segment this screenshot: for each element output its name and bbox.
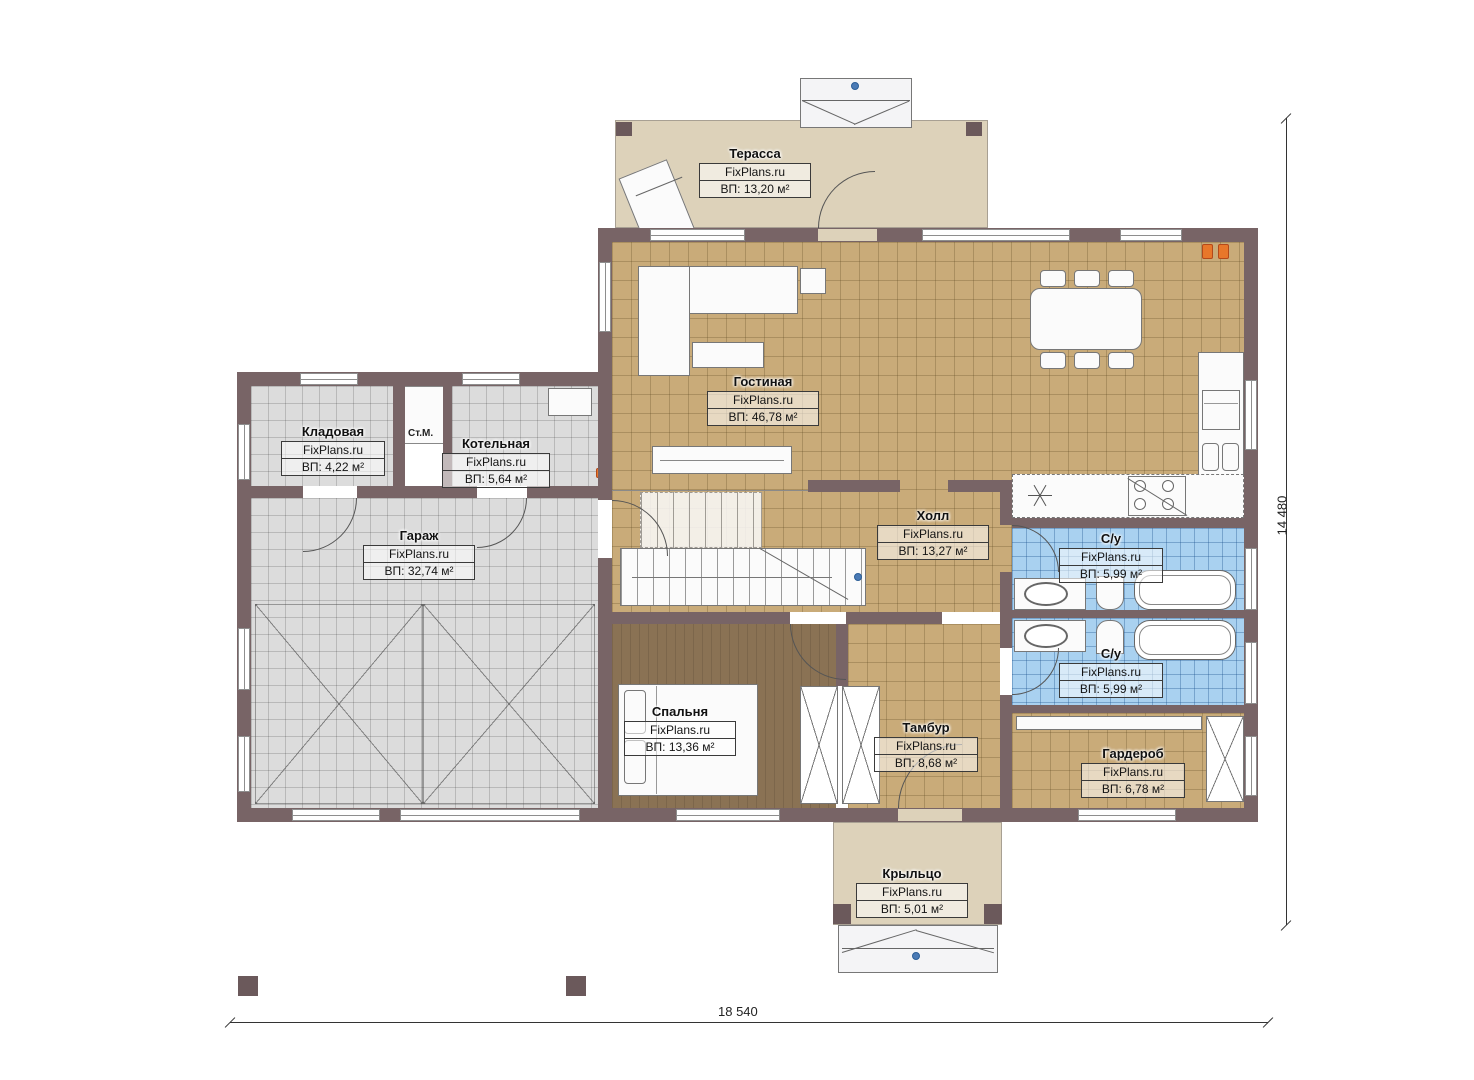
window [676, 809, 780, 821]
washing-machine-label: Ст.М. [408, 428, 433, 439]
room-area: ВП: 5,99 м² [1060, 566, 1162, 582]
room-area: ВП: 46,78 м² [708, 409, 818, 425]
window [292, 809, 380, 821]
window [238, 628, 250, 690]
brand-watermark: FixPlans.ru [700, 164, 810, 181]
room-label-wardrobe: Гардероб FixPlans.ru ВП: 6,78 м² [1081, 746, 1185, 798]
brand-watermark: FixPlans.ru [708, 392, 818, 409]
floor-plan: Терасса FixPlans.ru ВП: 13,20 м² Гостина… [0, 0, 1474, 1080]
chair [1108, 352, 1134, 369]
room-label-bath2: С/у FixPlans.ru ВП: 5,99 м² [1059, 646, 1163, 698]
coffee-table [692, 342, 764, 368]
window [1245, 548, 1257, 610]
boiler-unit [548, 388, 592, 416]
wall [808, 480, 900, 492]
room-name: С/у [1059, 531, 1163, 546]
fridge [1202, 390, 1240, 430]
railing-line [612, 490, 808, 491]
room-area: ВП: 8,68 м² [875, 755, 977, 771]
tv-stand-line [660, 460, 784, 461]
wardrobe-shelf [1016, 716, 1202, 730]
room-name: Спальня [624, 704, 736, 719]
brand-watermark: FixPlans.ru [1060, 664, 1162, 681]
radiator-icon [1202, 244, 1213, 259]
wall [1000, 572, 1012, 648]
window [238, 736, 250, 792]
garage-hatch [423, 604, 595, 804]
terrace-post [616, 122, 632, 136]
radiator-icon [1218, 244, 1229, 259]
brand-watermark: FixPlans.ru [282, 442, 384, 459]
chair [1108, 270, 1134, 287]
closet [800, 686, 838, 804]
side-table [800, 268, 826, 294]
room-label-boiler: Котельная FixPlans.ru ВП: 5,64 м² [442, 436, 550, 488]
room-area: ВП: 5,64 м² [443, 471, 549, 487]
room-area: ВП: 5,99 м² [1060, 681, 1162, 697]
wall [251, 486, 303, 498]
room-label-storage: Кладовая FixPlans.ru ВП: 4,22 м² [281, 424, 385, 476]
room-label-vestibule: Тамбур FixPlans.ru ВП: 8,68 м² [874, 720, 978, 772]
room-label-terrace: Терасса FixPlans.ru ВП: 13,20 м² [699, 146, 811, 198]
brand-watermark: FixPlans.ru [857, 884, 967, 901]
wall [846, 612, 942, 624]
wall [393, 386, 405, 486]
wall [1000, 695, 1012, 808]
room-name: Терасса [699, 146, 811, 161]
porch-stairs [838, 925, 998, 973]
porch-post [984, 904, 1002, 924]
room-name: Котельная [442, 436, 550, 451]
room-label-porch: Крыльцо FixPlans.ru ВП: 5,01 м² [856, 866, 968, 918]
wall [1012, 518, 1244, 528]
window [1245, 642, 1257, 704]
wall [598, 558, 612, 808]
window [238, 424, 250, 480]
window [650, 229, 745, 241]
room-name: С/у [1059, 646, 1163, 661]
window [300, 373, 358, 385]
door-opening [898, 809, 962, 821]
wall [1012, 610, 1244, 618]
window [1120, 229, 1182, 241]
window [1245, 736, 1257, 796]
room-label-garage: Гараж FixPlans.ru ВП: 32,74 м² [363, 528, 475, 580]
room-label-living: Гостиная FixPlans.ru ВП: 46,78 м² [707, 374, 819, 426]
room-label-hall: Холл FixPlans.ru ВП: 13,27 м² [877, 508, 989, 560]
dining-table [1030, 288, 1142, 350]
sink-basin [1024, 582, 1068, 606]
chair [1040, 270, 1066, 287]
room-name: Крыльцо [856, 866, 968, 881]
brand-watermark: FixPlans.ru [364, 546, 474, 563]
room-area: ВП: 5,01 м² [857, 901, 967, 917]
chair [1040, 352, 1066, 369]
window [922, 229, 1070, 241]
dimension-line-bottom [230, 1022, 1268, 1023]
brand-watermark: FixPlans.ru [625, 722, 735, 739]
door-opening [818, 229, 877, 241]
room-name: Гардероб [1081, 746, 1185, 761]
site-post [566, 976, 586, 996]
kitchen-sink-bowl [1222, 443, 1239, 471]
room-label-bath1: С/у FixPlans.ru ВП: 5,99 м² [1059, 531, 1163, 583]
room-area: ВП: 13,20 м² [700, 181, 810, 197]
wall [1012, 705, 1244, 713]
dimension-height: 14 480 [1275, 486, 1290, 546]
terrace-post [966, 122, 982, 136]
site-post [238, 976, 258, 996]
room-area: ВП: 4,22 м² [282, 459, 384, 475]
brand-watermark: FixPlans.ru [1082, 764, 1184, 781]
sofa-chaise [638, 266, 690, 376]
direction-dot [912, 952, 920, 960]
brand-watermark: FixPlans.ru [443, 454, 549, 471]
room-name: Холл [877, 508, 989, 523]
dimension-width: 18 540 [718, 1004, 758, 1019]
stairs-arrow-line [632, 577, 832, 578]
wardrobe-cabinet [1206, 716, 1244, 802]
room-area: ВП: 13,27 м² [878, 543, 988, 559]
chair [1074, 352, 1100, 369]
room-name: Гостиная [707, 374, 819, 389]
exterior-wall [1244, 228, 1258, 822]
sink-basin [1024, 624, 1068, 648]
wall [1000, 480, 1012, 525]
direction-dot [854, 573, 862, 581]
window [462, 373, 520, 385]
room-label-bedroom: Спальня FixPlans.ru ВП: 13,36 м² [624, 704, 736, 756]
brand-watermark: FixPlans.ru [878, 526, 988, 543]
chair [1074, 270, 1100, 287]
porch-post [833, 904, 851, 924]
room-area: ВП: 13,36 м² [625, 739, 735, 755]
stair-line [842, 948, 994, 949]
wall [598, 386, 612, 500]
direction-dot [851, 82, 859, 90]
garage-hatch [255, 604, 423, 804]
brand-watermark: FixPlans.ru [875, 738, 977, 755]
stair-line [802, 100, 910, 101]
window [1078, 809, 1176, 821]
room-area: ВП: 6,78 м² [1082, 781, 1184, 797]
room-name: Гараж [363, 528, 475, 543]
room-name: Кладовая [281, 424, 385, 439]
window [599, 262, 611, 332]
fridge-line [1204, 403, 1238, 404]
garage-gate [400, 809, 580, 821]
exterior-wall [237, 372, 612, 386]
wall [598, 612, 790, 624]
window [1245, 380, 1257, 450]
room-area: ВП: 32,74 м² [364, 563, 474, 579]
room-name: Тамбур [874, 720, 978, 735]
brand-watermark: FixPlans.ru [1060, 549, 1162, 566]
kitchen-sink-bowl [1202, 443, 1219, 471]
